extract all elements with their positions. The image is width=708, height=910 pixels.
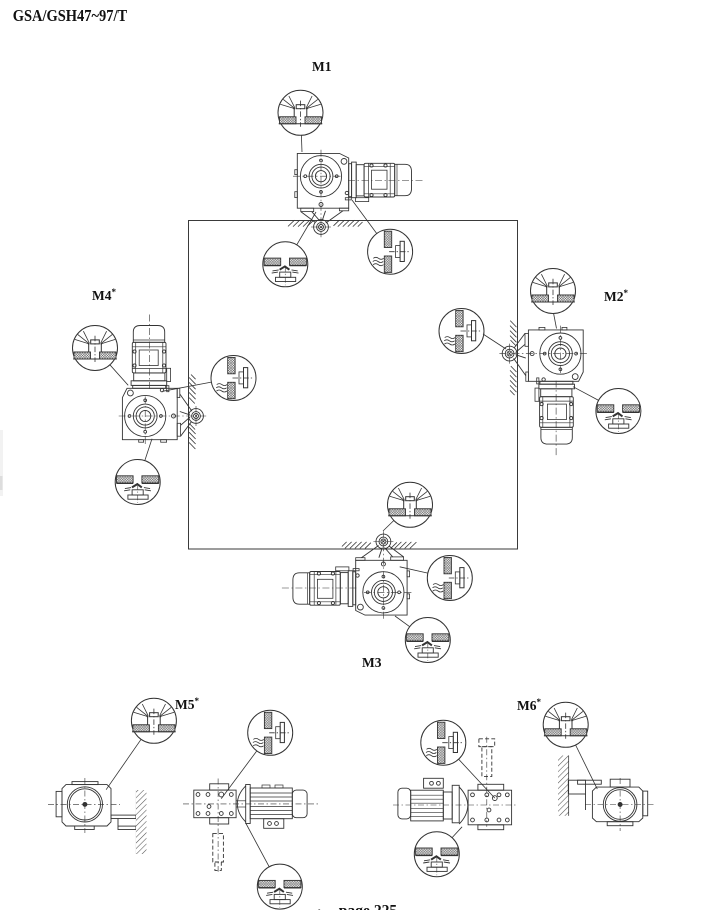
svg-text:M4*: M4*: [92, 287, 117, 303]
svg-text:M1: M1: [312, 59, 332, 74]
svg-text:M2*: M2*: [604, 288, 629, 304]
svg-text:M5*: M5*: [175, 696, 200, 712]
svg-text:M3: M3: [362, 655, 382, 670]
svg-text:M6*: M6*: [517, 697, 542, 713]
svg-text:→page 225: →page 225: [323, 902, 397, 910]
svg-text:GSA/GSH47~97/T: GSA/GSH47~97/T: [13, 6, 128, 25]
